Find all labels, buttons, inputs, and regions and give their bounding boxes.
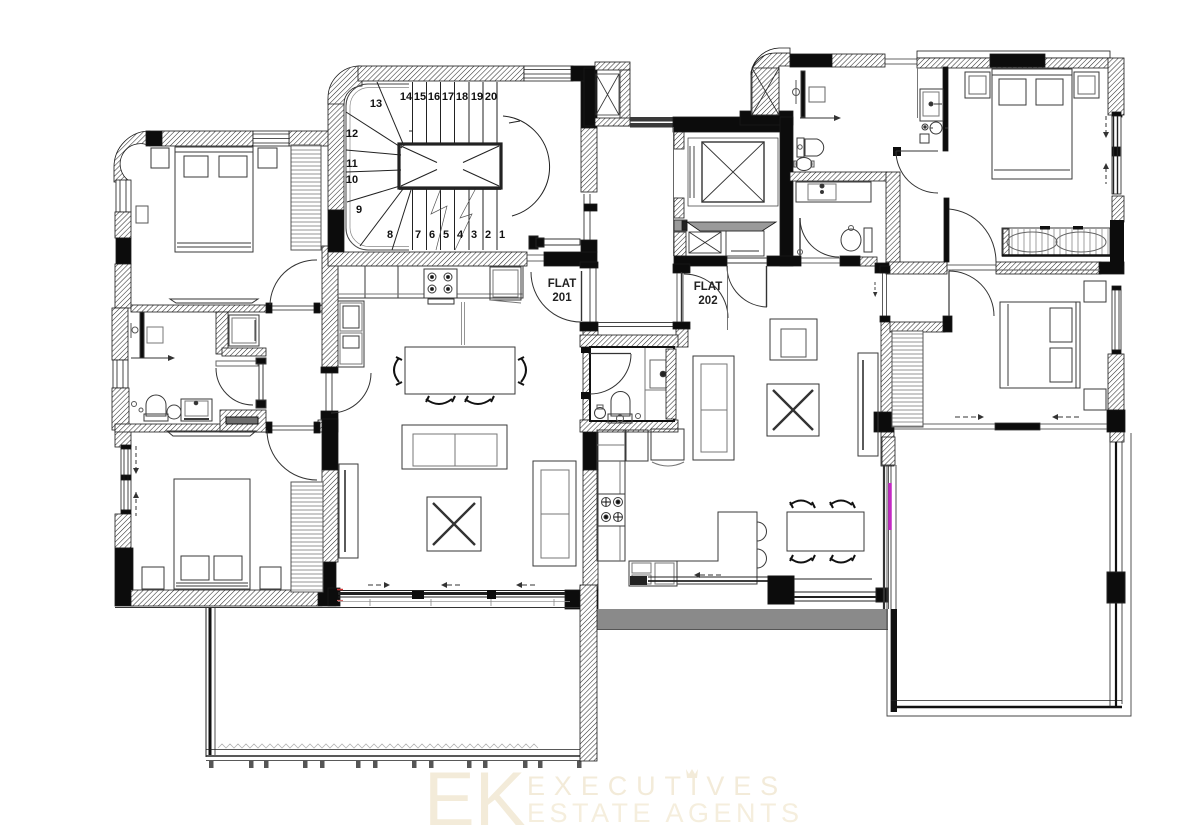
svg-text:11: 11 xyxy=(346,158,358,170)
svg-text:8: 8 xyxy=(387,229,393,241)
svg-text:9: 9 xyxy=(356,204,362,216)
svg-text:16: 16 xyxy=(428,91,440,103)
svg-text:15: 15 xyxy=(414,91,426,103)
svg-text:14: 14 xyxy=(400,91,413,103)
svg-text:202: 202 xyxy=(698,295,717,307)
svg-text:1: 1 xyxy=(499,229,505,241)
svg-text:12: 12 xyxy=(346,128,358,140)
svg-text:17: 17 xyxy=(442,91,454,103)
svg-text:EK: EK xyxy=(424,757,525,826)
svg-text:201: 201 xyxy=(552,292,572,304)
svg-text:FLAT: FLAT xyxy=(694,281,723,293)
svg-text:10: 10 xyxy=(346,174,358,186)
svg-text:FLAT: FLAT xyxy=(548,278,577,290)
svg-text:20: 20 xyxy=(485,91,497,103)
svg-text:EXECUTIVES: EXECUTIVES xyxy=(527,771,787,801)
svg-text:19: 19 xyxy=(471,91,483,103)
svg-text:7: 7 xyxy=(415,229,421,241)
svg-text:3: 3 xyxy=(471,229,477,241)
svg-text:13: 13 xyxy=(370,98,382,110)
svg-text:ESTATE AGENTS: ESTATE AGENTS xyxy=(527,798,804,826)
svg-text:18: 18 xyxy=(456,91,468,103)
svg-text:6: 6 xyxy=(429,229,435,241)
svg-text:5: 5 xyxy=(443,229,449,241)
svg-text:4: 4 xyxy=(457,229,464,241)
svg-text:2: 2 xyxy=(485,229,491,241)
